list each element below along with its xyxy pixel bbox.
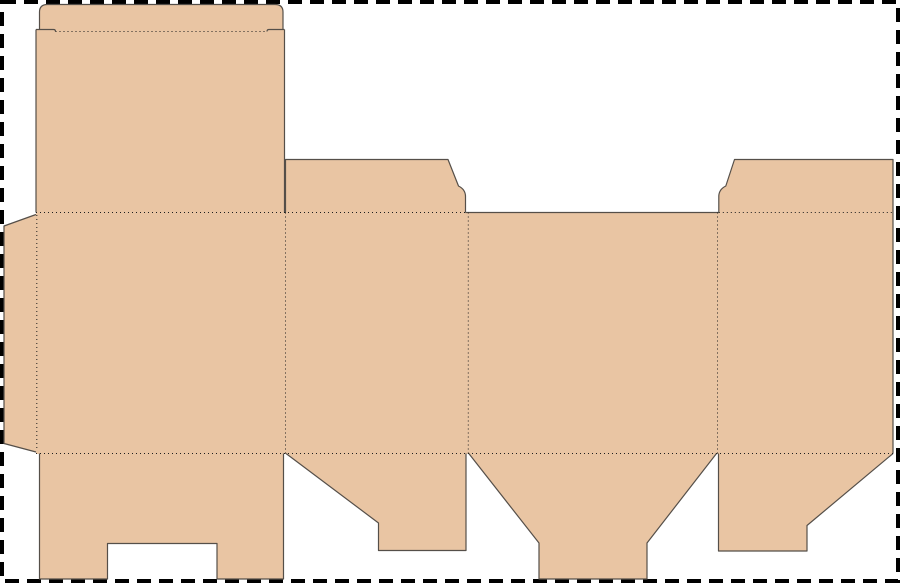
lid-panel-fill — [36, 30, 285, 214]
body-panels-fill — [36, 212, 893, 454]
tuck-flap-fill — [40, 5, 284, 33]
box-dieline-template-image — [0, 0, 900, 584]
dust-flap-left-fill — [286, 160, 466, 214]
dust-flap-right-fill — [719, 160, 893, 214]
glue-flap-fill — [4, 215, 36, 453]
box-dieline-svg — [0, 0, 900, 584]
